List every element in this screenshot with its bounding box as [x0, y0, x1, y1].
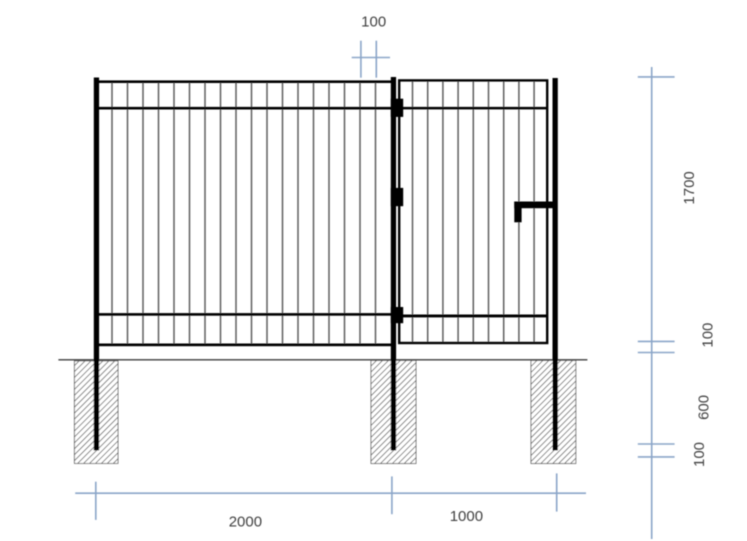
svg-text:100: 100: [700, 323, 717, 348]
svg-text:1700: 1700: [681, 171, 698, 204]
svg-text:100: 100: [361, 14, 386, 31]
svg-text:100: 100: [691, 442, 708, 467]
svg-text:1000: 1000: [450, 508, 483, 525]
svg-text:600: 600: [696, 395, 713, 420]
svg-text:2000: 2000: [229, 513, 262, 530]
